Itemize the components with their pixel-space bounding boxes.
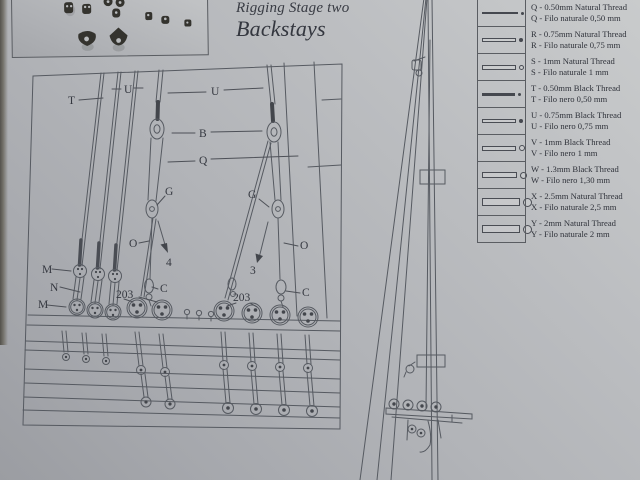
label-g-left: G (165, 186, 173, 198)
legend-row-R: R - 0.75mm Natural Thread R - Filo natur… (478, 27, 640, 54)
thread-sample-bar (482, 119, 516, 123)
legend-text: S - 1mm Natural Thread S - Filo naturale… (525, 54, 640, 81)
thread-sample-bar (482, 65, 516, 70)
legend-line-en: V - 1mm Black Thread (531, 137, 640, 148)
legend-sample (478, 0, 525, 27)
instruction-sheet-photo: Rigging Stage two Backstays (0, 0, 640, 480)
legend-row-X: X - 2.5mm Natural Thread X - Filo natura… (478, 189, 640, 216)
label-q: Q (199, 155, 208, 167)
label-o-left: O (129, 238, 137, 250)
label-203-right: 203 (233, 292, 251, 304)
legend-line-it: R - Filo naturale 0,75 mm (531, 40, 640, 51)
legend-row-V: V - 1mm Black Thread V - Filo nero 1 mm (478, 135, 640, 162)
thread-sample-bar (482, 38, 516, 42)
legend-sample (478, 216, 525, 243)
legend-line-en: Y - 2mm Natural Thread (531, 218, 640, 229)
label-o-right: O (300, 240, 308, 252)
legend-text: Y - 2mm Natural Thread Y - Filo naturale… (525, 216, 640, 243)
legend-text: V - 1mm Black Thread V - Filo nero 1 mm (525, 135, 640, 162)
label-m-upper: M (42, 264, 52, 276)
label-u-mid: U (211, 86, 220, 98)
legend-text: T - 0.50mm Black Thread T - Filo nero 0,… (525, 81, 640, 108)
label-203-left: 203 (116, 289, 134, 301)
label-b: B (199, 128, 207, 140)
legend-row-W: W - 1.3mm Black Thread W - Filo nero 1,3… (478, 162, 640, 189)
legend-line-it: W - Filo nero 1,30 mm (531, 175, 640, 186)
thread-sample-dot (519, 65, 524, 70)
aft-shrouds (284, 62, 341, 318)
legend-row-S: S - 1mm Natural Thread S - Filo naturale… (478, 54, 640, 81)
thread-sample-dot (518, 93, 521, 96)
channel-rails (25, 315, 340, 360)
direction-arrows (158, 221, 268, 263)
thread-legend: Q - 0.50mm Natural Thread Q - Filo natur… (477, 0, 640, 243)
label-4: 4 (166, 257, 172, 269)
legend-line-en: U - 0.75mm Black Thread (531, 110, 640, 121)
mast-drawing (360, 0, 472, 480)
legend-sample (478, 189, 525, 216)
legend-text: R - 0.75mm Natural Thread R - Filo natur… (525, 27, 640, 54)
label-m-lower: M (38, 299, 48, 311)
legend-text: X - 2.5mm Natural Thread X - Filo natura… (525, 189, 640, 216)
legend-row-T: T - 0.50mm Black Thread T - Filo nero 0,… (478, 81, 640, 108)
label-t: T (68, 95, 75, 107)
thread-sample-dot (521, 12, 524, 15)
label-n: N (50, 282, 59, 294)
legend-line-it: T - Filo nero 0,50 mm (531, 94, 640, 105)
thread-sample-dot (519, 119, 523, 123)
legend-text: U - 0.75mm Black Thread U - Filo nero 0,… (525, 108, 640, 135)
legend-line-en: R - 0.75mm Natural Thread (531, 29, 640, 40)
legend-row-U: U - 0.75mm Black Thread U - Filo nero 0,… (478, 108, 640, 135)
thread-sample-bar (482, 93, 515, 96)
label-g-right: G (248, 189, 256, 201)
legend-line-it: S - Filo naturale 1 mm (531, 67, 640, 78)
thread-sample-bar (482, 198, 520, 206)
legend-line-en: W - 1.3mm Black Thread (531, 164, 640, 175)
rail-eyebolts (184, 309, 213, 321)
legend-text: W - 1.3mm Black Thread W - Filo nero 1,3… (525, 162, 640, 189)
legend-row-Q: Q - 0.50mm Natural Thread Q - Filo natur… (478, 0, 640, 27)
label-leaders (47, 88, 300, 307)
label-3: 3 (250, 265, 256, 277)
thread-sample-bar (482, 172, 517, 178)
label-c-right: C (302, 287, 310, 299)
label-u-left: U (124, 84, 133, 96)
label-c-left: C (160, 283, 168, 295)
legend-line-en: S - 1mm Natural Thread (531, 56, 640, 67)
legend-line-en: T - 0.50mm Black Thread (531, 83, 640, 94)
legend-line-it: V - Filo nero 1 mm (531, 148, 640, 159)
legend-sample (478, 27, 525, 54)
hull-lines (23, 369, 340, 418)
legend-line-it: X - Filo naturale 2,5 mm (531, 202, 640, 213)
legend-sample (478, 108, 525, 135)
legend-sample (478, 135, 525, 162)
pendant-tackle-left (141, 70, 164, 306)
thread-sample-bar (482, 146, 516, 151)
legend-text: Q - 0.50mm Natural Thread Q - Filo natur… (525, 0, 640, 27)
thread-sample-dot (519, 38, 523, 42)
legend-sample (478, 54, 525, 81)
legend-line-en: Q - 0.50mm Natural Thread (531, 2, 640, 13)
legend-sample (478, 81, 525, 108)
legend-line-it: Q - Filo naturale 0,50 mm (531, 13, 640, 24)
thread-sample-bar (482, 225, 520, 233)
legend-line-it: U - Filo nero 0,75 mm (531, 121, 640, 132)
legend-row-Y: Y - 2mm Natural Thread Y - Filo naturale… (478, 216, 640, 243)
thread-sample-bar (482, 12, 518, 14)
legend-line-it: Y - Filo naturale 2 mm (531, 229, 640, 240)
deadeyes-left-group (62, 265, 122, 365)
legend-sample (478, 162, 525, 189)
legend-line-en: X - 2.5mm Natural Thread (531, 191, 640, 202)
